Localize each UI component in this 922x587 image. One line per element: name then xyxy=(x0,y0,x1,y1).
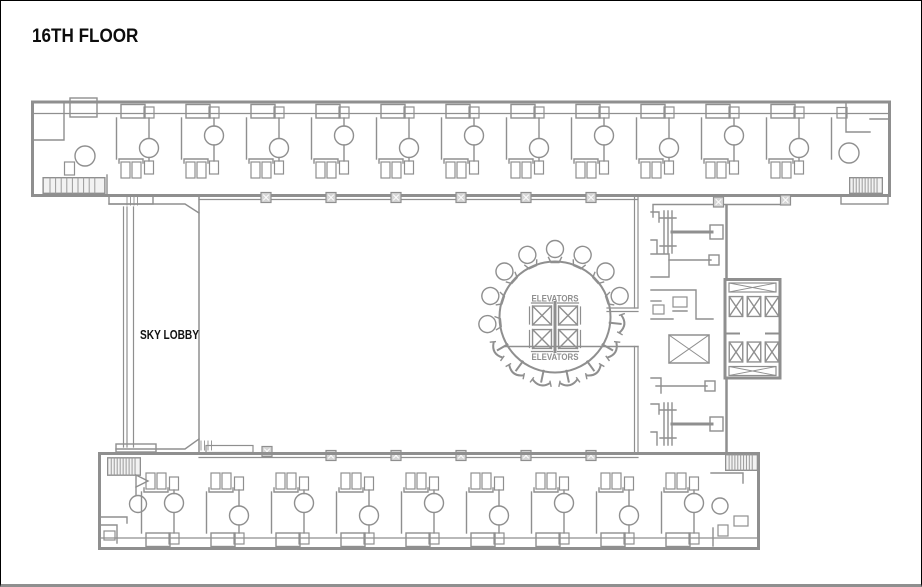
service-room xyxy=(651,290,713,319)
service-room xyxy=(651,403,723,445)
bottom-wing-room-bays xyxy=(142,473,704,547)
bottom-wing xyxy=(100,454,759,549)
sky-lobby-glazing xyxy=(124,207,134,447)
stairwell-top-left xyxy=(43,178,105,194)
mechanical-shaft xyxy=(669,335,709,363)
courtyard xyxy=(199,193,638,461)
sky-lobby-bottom-vestibule xyxy=(116,444,156,452)
courtyard-columns xyxy=(261,193,596,461)
top-wing-outer-wall xyxy=(33,102,890,196)
service-room xyxy=(651,378,715,393)
elevator-shaft xyxy=(533,306,552,325)
elevator-shaft xyxy=(765,297,779,317)
service-core xyxy=(651,195,791,452)
elevator-shaft xyxy=(559,306,578,325)
bottom-right-corner-suite xyxy=(711,473,748,546)
courtyard-east-wall xyxy=(635,197,639,453)
floor-plan-drawing: SKY LOBBY xyxy=(1,1,922,587)
elevator-shaft xyxy=(729,342,743,362)
service-room xyxy=(651,254,719,277)
elevator-shaft xyxy=(533,330,552,349)
elevator-shaft xyxy=(747,297,761,317)
elevator-bank xyxy=(725,280,780,379)
floorplan-page: 16TH FLOOR xyxy=(0,0,922,587)
elevators-label-top: ELEVATORS xyxy=(532,294,579,304)
service-room xyxy=(651,211,723,253)
sky-lobby: SKY LOBBY xyxy=(109,195,253,453)
sky-lobby-label: SKY LOBBY xyxy=(140,328,200,342)
lobby-planter xyxy=(206,446,253,453)
stairwell-bottom-right xyxy=(726,455,758,471)
elevator-shaft xyxy=(747,342,761,362)
elevator-shaft xyxy=(559,330,578,349)
elevator-shaft xyxy=(765,342,779,362)
elevators-label-bottom: ELEVATORS xyxy=(532,352,579,362)
stairwell-bottom-left xyxy=(108,458,141,475)
stairwell-top-right xyxy=(850,178,883,194)
elevator-core xyxy=(530,303,581,352)
elevator-rotunda: ELEVATORS ELEVATORS xyxy=(478,241,630,388)
top-wing-room-bays xyxy=(117,105,832,179)
top-wing xyxy=(33,98,890,204)
elevator-shaft xyxy=(729,297,743,317)
